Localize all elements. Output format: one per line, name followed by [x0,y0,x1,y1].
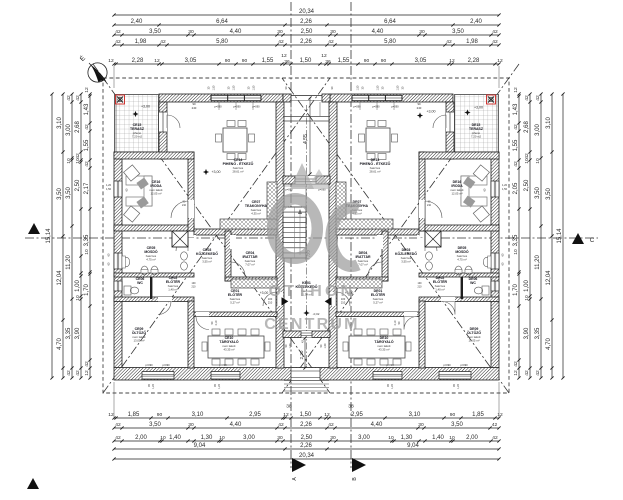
svg-text:p=090: p=090 [391,105,399,109]
svg-text:2,26: 2,26 [300,39,312,45]
svg-text:30: 30 [418,422,424,428]
svg-text:2,50: 2,50 [524,179,530,191]
svg-text:30: 30 [330,29,336,35]
svg-text:210: 210 [418,285,423,288]
svg-text:3,35: 3,35 [84,234,90,246]
svg-text:3,50: 3,50 [57,188,63,200]
svg-text:1,50: 1,50 [397,85,400,90]
svg-text:3,05: 3,05 [415,58,427,64]
svg-text:28,61 m²: 28,61 m² [369,169,380,173]
svg-text:4,40: 4,40 [371,422,383,428]
svg-text:1,20: 1,20 [391,384,394,389]
svg-text:1,30: 1,30 [401,435,413,441]
svg-text:4,75 m²: 4,75 m² [457,257,467,261]
svg-text:1,70: 1,70 [513,284,519,296]
svg-text:13,05 m²: 13,05 m² [468,338,479,342]
svg-text:11,20: 11,20 [535,255,541,270]
svg-text:3,05: 3,05 [185,58,197,64]
svg-text:p=090: p=090 [460,363,468,367]
svg-text:p=090: p=090 [219,363,227,367]
svg-text:42: 42 [492,39,498,45]
svg-text:42: 42 [66,95,72,101]
svg-text:2,40: 2,40 [131,19,143,25]
svg-text:2,68: 2,68 [75,121,81,133]
svg-text:1,55: 1,55 [513,139,519,151]
svg-text:3,90: 3,90 [75,327,81,339]
svg-text:2,50: 2,50 [75,179,81,191]
svg-text:p=090: p=090 [443,363,451,367]
svg-text:5,80: 5,80 [216,39,228,45]
svg-text:4,35 m²: 4,35 m² [251,211,261,215]
svg-text:4,40: 4,40 [230,422,242,428]
svg-text:2,20: 2,20 [299,350,304,359]
svg-text:42: 42 [75,95,81,101]
svg-text:210: 210 [427,204,432,207]
svg-text:20,34: 20,34 [299,453,315,459]
svg-text:5,27 m²: 5,27 m² [230,300,240,304]
svg-text:2,05: 2,05 [513,182,519,194]
svg-text:42: 42 [535,95,541,101]
svg-text:42: 42 [328,422,334,428]
svg-text:WC: WC [470,281,476,285]
svg-text:3,00: 3,00 [243,435,255,441]
svg-text:43,35 m²: 43,35 m² [378,347,389,351]
svg-text:15,14: 15,14 [46,228,52,244]
svg-text:3,10: 3,10 [192,412,204,418]
svg-text:2,10: 2,10 [215,320,218,325]
svg-text:6,64: 6,64 [216,19,228,25]
svg-text:7,07 m²: 7,07 m² [358,262,368,266]
svg-text:10: 10 [66,158,72,164]
svg-text:210: 210 [182,204,187,207]
svg-text:7,20 m2: 7,20 m2 [471,134,482,138]
svg-text:OTTHON: OTTHON [269,283,356,300]
svg-text:12: 12 [84,87,90,93]
svg-text:28,61 m²: 28,61 m² [232,169,243,173]
svg-text:1,50: 1,50 [213,85,216,90]
svg-text:42: 42 [524,153,530,159]
svg-text:2,28: 2,28 [132,58,144,64]
svg-text:1,50: 1,50 [253,85,256,90]
svg-text:7,07 m²: 7,07 m² [245,262,255,266]
svg-text:42: 42 [278,39,284,45]
svg-text:4,70: 4,70 [57,338,63,350]
svg-text:42: 42 [84,361,90,367]
svg-text:3,55 m²: 3,55 m² [202,259,212,263]
svg-text:1,98: 1,98 [135,39,147,45]
svg-text:3,50: 3,50 [451,422,463,428]
svg-text:WC: WC [137,281,143,285]
svg-text:1,40: 1,40 [432,435,444,441]
svg-text:3,35: 3,35 [66,327,72,339]
svg-text:3,10: 3,10 [546,117,552,129]
svg-text:12: 12 [513,87,519,93]
svg-text:+3,00: +3,00 [260,291,269,295]
svg-text:12: 12 [281,53,287,59]
svg-text:p=090: p=090 [145,363,153,367]
svg-text:10: 10 [524,295,530,301]
svg-text:30: 30 [188,422,194,428]
svg-text:42: 42 [513,361,519,367]
svg-text:12,04: 12,04 [57,270,63,286]
svg-text:3,50: 3,50 [149,422,161,428]
svg-text:2,26: 2,26 [300,19,312,25]
svg-text:12,05 m²: 12,05 m² [150,191,161,195]
svg-text:3,55 m²: 3,55 m² [401,259,411,263]
svg-text:12: 12 [497,412,503,418]
svg-text:42: 42 [524,95,530,101]
svg-text:1,40 m²: 1,40 m² [168,287,178,291]
svg-text:3,50: 3,50 [452,29,464,35]
svg-text:36: 36 [284,59,290,65]
svg-text:36: 36 [325,59,331,65]
svg-text:240: 240 [192,106,197,110]
svg-text:42: 42 [278,422,284,428]
svg-text:9,04: 9,04 [194,443,206,449]
svg-text:1,20: 1,20 [218,384,221,389]
svg-text:42: 42 [75,370,81,376]
svg-text:4,40: 4,40 [230,29,242,35]
svg-text:42: 42 [115,39,121,45]
svg-text:42: 42 [115,435,121,441]
svg-text:1,50: 1,50 [357,85,360,90]
svg-text:1,50: 1,50 [300,412,312,418]
svg-text:90: 90 [364,58,370,64]
svg-text:10: 10 [75,295,81,301]
svg-text:1,43: 1,43 [84,103,90,115]
svg-text:90: 90 [242,58,248,64]
svg-text:+3,00: +3,00 [426,110,435,114]
svg-text:1,40 m²: 1,40 m² [435,287,445,291]
svg-text:10: 10 [75,158,81,164]
svg-text:+3,00: +3,00 [141,105,150,109]
svg-text:2,40: 2,40 [470,19,482,25]
svg-text:5,27 m²: 5,27 m² [373,300,383,304]
svg-text:12: 12 [449,58,455,64]
svg-text:1,50: 1,50 [502,187,508,191]
svg-text:10: 10 [160,435,166,441]
svg-text:10: 10 [535,158,541,164]
svg-text:90: 90 [225,58,231,64]
svg-text:1,50: 1,50 [106,187,112,191]
svg-text:1,00: 1,00 [524,280,530,292]
svg-text:2,17: 2,17 [84,182,90,194]
svg-text:2,95: 2,95 [249,412,261,418]
svg-text:4,75 m²: 4,75 m² [146,257,156,261]
svg-text:30: 30 [188,29,194,35]
svg-text:10: 10 [84,249,90,255]
svg-text:1,55: 1,55 [262,58,274,64]
svg-text:p=090: p=090 [214,105,222,109]
svg-text:240: 240 [417,106,422,110]
svg-text:2,50: 2,50 [301,29,313,35]
svg-text:1,50: 1,50 [377,85,380,90]
svg-text:4,40: 4,40 [372,29,384,35]
svg-text:p=090: p=090 [233,105,241,109]
svg-text:1,98: 1,98 [466,39,478,45]
svg-text:13,05 m²: 13,05 m² [133,338,144,342]
svg-text:1,20: 1,20 [457,384,460,389]
svg-text:3,10: 3,10 [409,412,421,418]
svg-text:1,43: 1,43 [513,103,519,115]
svg-text:42: 42 [84,124,90,130]
svg-text:3,50: 3,50 [546,188,552,200]
svg-text:20,34: 20,34 [299,9,315,15]
svg-text:10: 10 [524,158,530,164]
svg-text:2,95: 2,95 [351,412,363,418]
svg-text:12: 12 [321,53,327,59]
svg-text:1,40: 1,40 [169,435,181,441]
svg-text:1,55: 1,55 [338,58,350,64]
svg-text:4,70: 4,70 [546,338,552,350]
svg-text:4,55: 4,55 [303,134,309,144]
svg-text:2,68: 2,68 [524,121,530,133]
svg-text:12: 12 [154,58,160,64]
svg-text:210: 210 [268,300,273,304]
svg-text:42: 42 [513,161,519,167]
svg-text:10: 10 [388,435,394,441]
svg-text:42: 42 [524,370,530,376]
svg-text:3,90: 3,90 [524,327,530,339]
svg-text:5,80: 5,80 [384,39,396,45]
svg-text:43,35 m²: 43,35 m² [223,347,234,351]
svg-text:42: 42 [115,422,121,428]
svg-text:42: 42 [160,39,166,45]
svg-text:12: 12 [108,58,114,64]
svg-text:+3,00: +3,00 [211,170,220,174]
svg-text:42: 42 [492,29,498,35]
svg-text:10: 10 [513,249,519,255]
svg-text:2,26: 2,26 [300,422,312,428]
svg-text:11,20: 11,20 [66,255,72,270]
svg-text:42: 42 [66,370,72,376]
svg-text:1,85: 1,85 [128,412,140,418]
svg-text:1,50: 1,50 [233,85,236,90]
svg-text:42: 42 [75,153,81,159]
svg-text:3,10: 3,10 [57,117,63,129]
svg-text:p=090: p=090 [162,363,170,367]
svg-text:90: 90 [450,412,456,418]
svg-text:3,00: 3,00 [535,124,541,136]
svg-text:3,00: 3,00 [66,124,72,136]
svg-text:3,00: 3,00 [358,435,370,441]
svg-text:+3,00: +3,00 [474,106,483,110]
svg-text:3,35: 3,35 [535,327,541,339]
svg-text:1,30: 1,30 [201,435,213,441]
svg-text:30: 30 [330,435,336,441]
svg-text:2,00: 2,00 [135,435,147,441]
svg-text:30: 30 [277,435,283,441]
svg-text:1,55: 1,55 [84,139,90,151]
svg-text:90: 90 [381,58,387,64]
svg-text:42: 42 [84,161,90,167]
svg-text:30: 30 [419,29,425,35]
svg-text:1,20: 1,20 [106,183,112,187]
svg-text:p=090: p=090 [372,105,380,109]
svg-text:12: 12 [84,370,90,376]
svg-text:42: 42 [446,39,452,45]
svg-text:7,20 m2: 7,20 m2 [132,134,143,138]
svg-text:CENTRUM: CENTRUM [264,316,359,333]
svg-text:90: 90 [157,412,163,418]
svg-text:12,04: 12,04 [546,270,552,286]
svg-text:3,50: 3,50 [535,187,541,199]
svg-text:30: 30 [277,29,283,35]
svg-text:15,14: 15,14 [557,228,563,244]
svg-text:1,00: 1,00 [289,343,292,348]
svg-text:2,10: 2,10 [394,320,397,325]
svg-text:12: 12 [497,58,503,64]
svg-text:2,50: 2,50 [301,435,313,441]
svg-text:10: 10 [449,435,455,441]
svg-text:42: 42 [492,435,498,441]
svg-text:210: 210 [192,285,197,288]
svg-text:12: 12 [283,412,289,418]
svg-text:3,35: 3,35 [513,234,519,246]
svg-text:2,00: 2,00 [466,435,478,441]
svg-text:1,50: 1,50 [300,58,312,64]
svg-text:p=090: p=090 [386,363,394,367]
svg-text:42: 42 [115,29,121,35]
svg-text:10: 10 [219,435,225,441]
svg-text:12: 12 [513,370,519,376]
svg-text:p=090: p=090 [252,105,260,109]
svg-text:3,50: 3,50 [66,187,72,199]
svg-text:C: C [590,238,595,244]
svg-text:1,85: 1,85 [472,412,484,418]
svg-text:42: 42 [513,124,519,130]
svg-text:9,04: 9,04 [407,443,419,449]
svg-text:12,05 m²: 12,05 m² [451,191,462,195]
svg-text:210: 210 [341,300,346,304]
svg-text:1,00: 1,00 [75,280,81,292]
svg-text:p=090: p=090 [353,105,361,109]
svg-text:6,64: 6,64 [384,19,396,25]
svg-text:3,50: 3,50 [149,29,161,35]
svg-text:2,26: 2,26 [300,443,312,449]
svg-text:1,70: 1,70 [84,284,90,296]
svg-text:42: 42 [535,370,541,376]
svg-text:2,28: 2,28 [468,58,480,64]
svg-text:42: 42 [328,39,334,45]
svg-text:12: 12 [324,412,330,418]
svg-text:1,20: 1,20 [152,384,155,389]
svg-text:1,00: 1,00 [324,343,327,348]
svg-text:12: 12 [108,412,114,418]
svg-text:1,20: 1,20 [502,183,508,187]
svg-text:42: 42 [492,422,498,428]
